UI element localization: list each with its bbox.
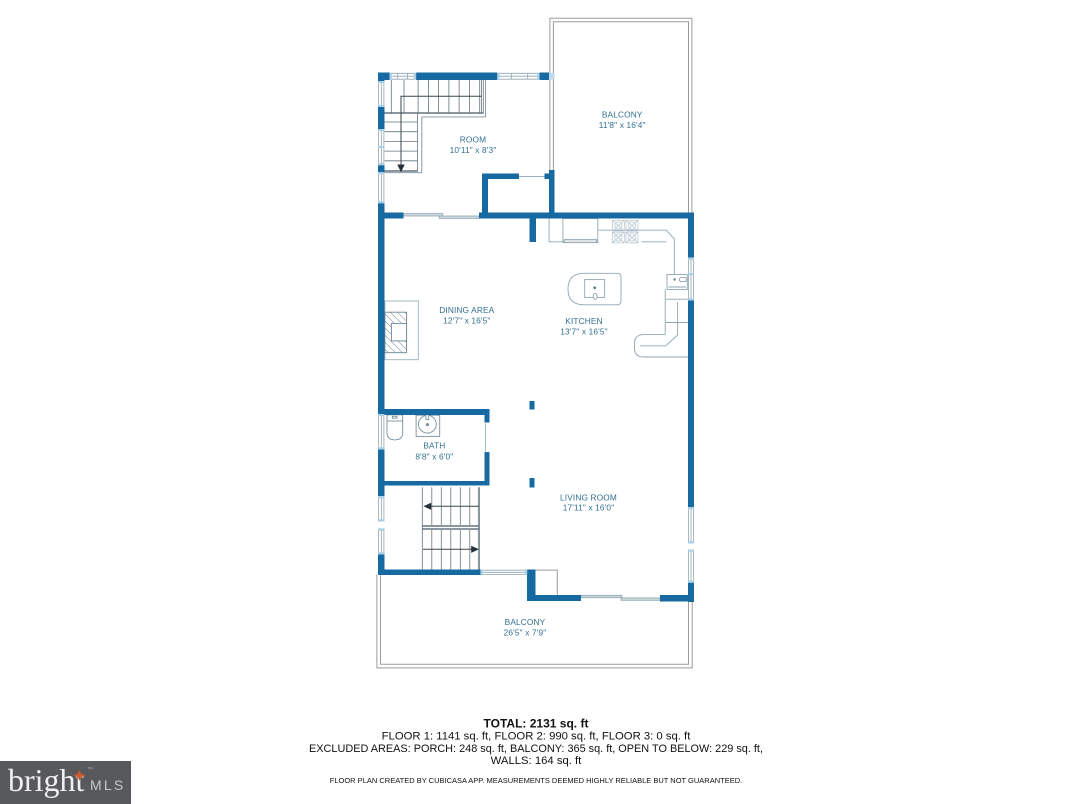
svg-text:EXCLUDED AREAS: PORCH: 248 sq.: EXCLUDED AREAS: PORCH: 248 sq. ft, BALCO… — [309, 743, 763, 755]
svg-text:17'11" x 16'0": 17'11" x 16'0" — [563, 503, 615, 513]
svg-text:10'11" x 8'3": 10'11" x 8'3" — [450, 145, 497, 155]
svg-text:13'7" x 16'5": 13'7" x 16'5" — [560, 326, 607, 336]
svg-text:DINING AREA: DINING AREA — [439, 305, 494, 315]
svg-text:BATH: BATH — [423, 441, 445, 451]
svg-text:8'8" x 6'0": 8'8" x 6'0" — [415, 452, 453, 462]
svg-text:26'5" x 7'9": 26'5" x 7'9" — [504, 628, 547, 638]
svg-text:BALCONY: BALCONY — [602, 109, 643, 119]
svg-text:FLOOR PLAN CREATED BY CUBICASA: FLOOR PLAN CREATED BY CUBICASA APP. MEAS… — [330, 776, 742, 785]
svg-text:FLOOR 1: 1141 sq. ft, FLOOR 2:: FLOOR 1: 1141 sq. ft, FLOOR 2: 990 sq. f… — [382, 731, 692, 743]
svg-text:11'8" x 16'4": 11'8" x 16'4" — [599, 120, 646, 130]
svg-text:KITCHEN: KITCHEN — [565, 316, 602, 326]
svg-text:LIVING ROOM: LIVING ROOM — [560, 492, 617, 502]
svg-text:WALLS: 164 sq. ft: WALLS: 164 sq. ft — [491, 755, 582, 767]
svg-text:ROOM: ROOM — [460, 135, 486, 145]
svg-text:BALCONY: BALCONY — [505, 617, 546, 627]
svg-text:TOTAL: 2131 sq. ft: TOTAL: 2131 sq. ft — [484, 717, 589, 731]
svg-text:12'7" x 16'5": 12'7" x 16'5" — [443, 315, 490, 325]
